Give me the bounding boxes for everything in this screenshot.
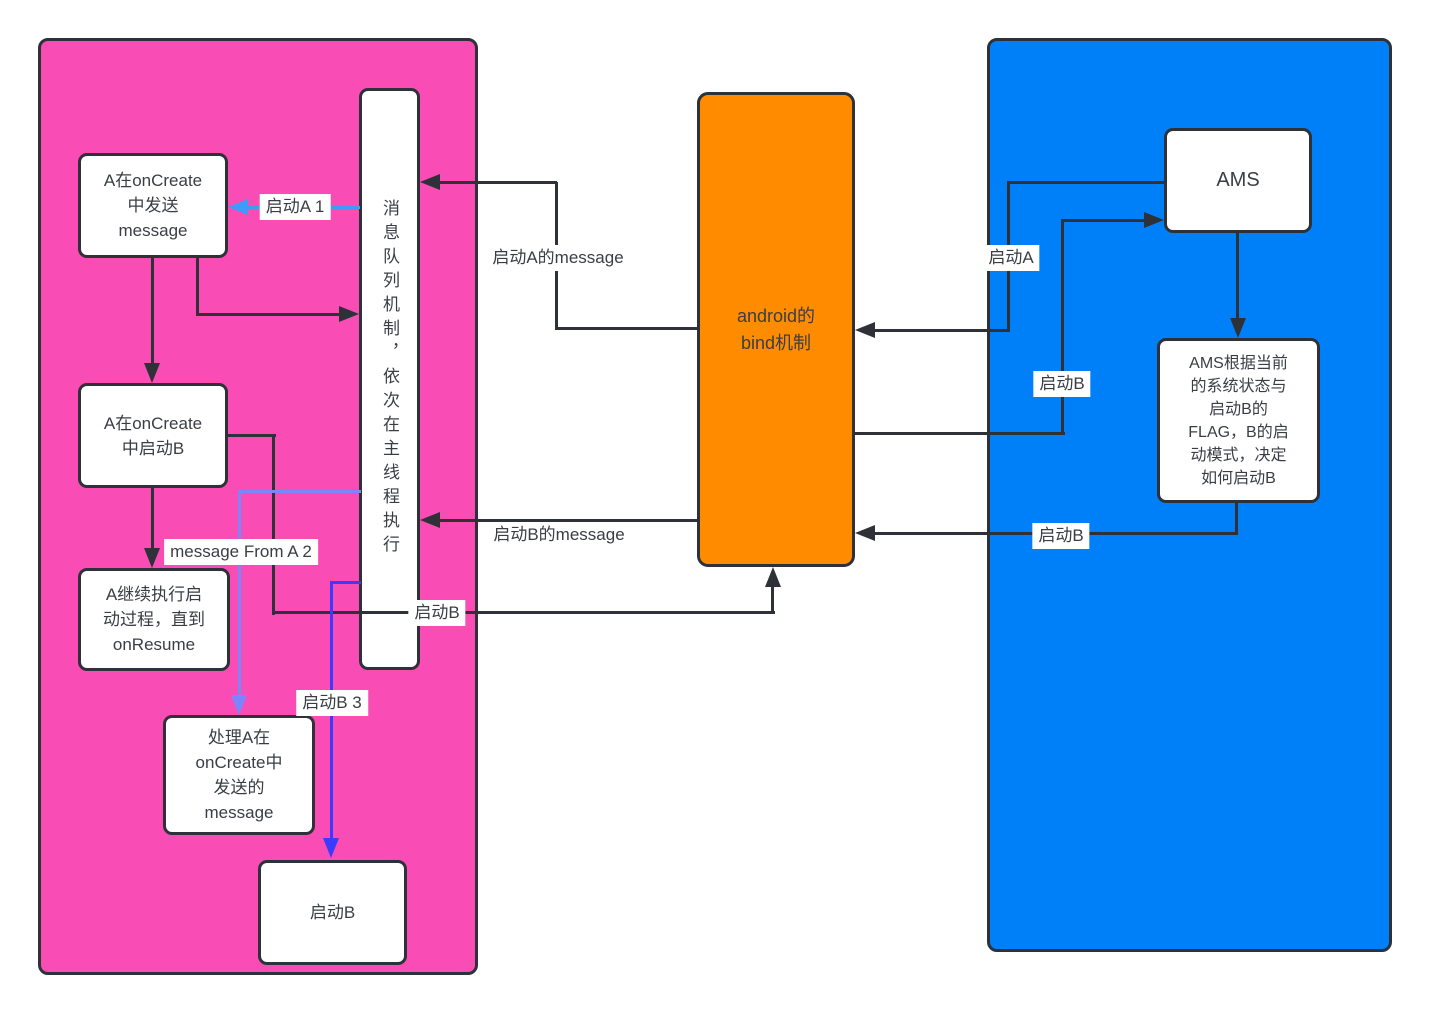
label-start-b-to-ams: 启动B — [1033, 371, 1090, 397]
edge-startb-to-bind-line-v2 — [771, 585, 774, 613]
edge-ams-to-decision-arrowhead-icon — [1230, 318, 1246, 338]
label-start-a-message: 启动A的message — [486, 245, 629, 271]
label-start-a-from-ams: 启动A — [982, 245, 1039, 271]
edge-queue-to-send-arrowhead-icon — [228, 199, 248, 215]
node-continue-until-onresume: A继续执行启 动过程，直到 onResume — [78, 568, 230, 671]
edge-bind-to-ams-line-h1 — [855, 432, 1065, 435]
label-start-b-from-decision: 启动B — [1032, 523, 1089, 549]
diagram-canvas: 消息队列机制，依次在主线程执行 A在onCreate 中发送 message A… — [0, 0, 1429, 1011]
edge-send-to-queue-line-v — [196, 258, 199, 316]
edge-startb-to-continue-arrowhead-icon — [144, 548, 160, 568]
label-start-a-1: 启动A 1 — [260, 194, 331, 220]
edge-send-to-queue-line-h — [196, 313, 346, 316]
edge-bind-to-ams-line-v — [1061, 219, 1064, 434]
node-ams: AMS — [1164, 128, 1312, 233]
node-message-queue-label: 消息队列机制，依次在主线程执行 — [381, 199, 398, 559]
edge-send-to-startb-arrowhead-icon — [144, 363, 160, 383]
edge-decision-to-bind-line-v — [1235, 503, 1238, 535]
label-start-b-to-bind: 启动B — [408, 600, 465, 626]
edge-starta-message-line-h2 — [437, 181, 557, 184]
node-start-b-in-oncreate: A在onCreate 中启动B — [78, 383, 228, 488]
edge-ams-to-bind-line-h2 — [871, 329, 1010, 332]
edge-send-to-queue-arrowhead-icon — [339, 306, 359, 322]
edge-bind-to-ams-line-h2 — [1061, 219, 1146, 222]
edge-send-to-startb-line — [151, 258, 154, 366]
edge-ams-to-bind-arrowhead-icon — [855, 322, 875, 338]
node-handle-message: 处理A在 onCreate中 发送的 message — [163, 715, 315, 835]
edge-startb-to-bind-line-h2 — [272, 611, 775, 614]
edge-starta-message-line-h1 — [557, 327, 697, 330]
edge-queue-to-handle-line-h — [239, 490, 361, 493]
label-message-from-a-2: message From A 2 — [164, 539, 318, 565]
edge-bind-to-ams-arrowhead-icon — [1144, 212, 1164, 228]
node-send-message: A在onCreate 中发送 message — [78, 153, 228, 258]
label-start-b-message: 启动B的message — [487, 522, 630, 548]
label-start-b-3: 启动B 3 — [296, 690, 368, 716]
node-ams-decision: AMS根据当前 的系统状态与 启动B的 FLAG，B的启 动模式，决定 如何启动… — [1157, 338, 1320, 503]
node-start-b: 启动B — [258, 860, 407, 965]
edge-startb-to-bind-arrowhead-icon — [765, 567, 781, 587]
edge-queue-to-handle-arrowhead-icon — [231, 695, 247, 715]
edge-ams-to-bind-line-h1 — [1008, 181, 1164, 184]
edge-startb-to-bind-line-v1 — [272, 434, 275, 615]
edge-startb-to-bind-line-h1 — [228, 434, 276, 437]
edge-queue-to-handle-line-v — [238, 490, 241, 698]
node-message-queue: 消息队列机制，依次在主线程执行 — [359, 88, 420, 670]
edge-startb-message-arrowhead-icon — [420, 512, 440, 528]
edge-ams-to-decision-line — [1236, 233, 1239, 321]
edge-decision-to-bind-arrowhead-icon — [855, 525, 875, 541]
node-bind-mechanism: android的 bind机制 — [697, 92, 855, 567]
edge-queue-to-startb-arrowhead-icon — [323, 838, 339, 858]
edge-starta-message-arrowhead-icon — [420, 174, 440, 190]
edge-queue-to-startb-line-h — [330, 581, 361, 584]
